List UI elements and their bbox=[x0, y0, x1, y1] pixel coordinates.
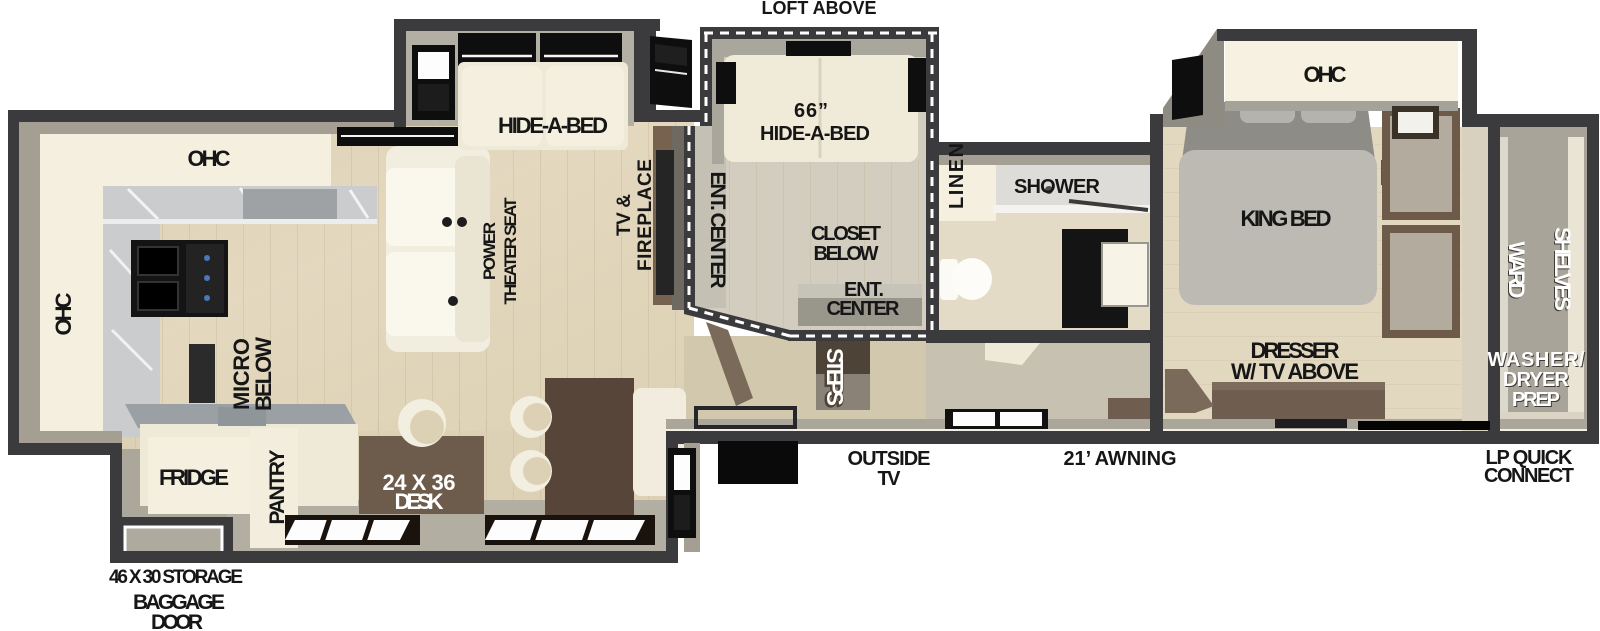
svg-text:KING BED: KING BED bbox=[1241, 206, 1332, 231]
svg-text:HIDE-A-BED: HIDE-A-BED bbox=[760, 123, 870, 145]
svg-text:STEPS: STEPS bbox=[822, 348, 848, 406]
svg-text:TV &: TV & bbox=[614, 194, 635, 236]
svg-text:OHC: OHC bbox=[1304, 62, 1347, 87]
svg-text:DESK: DESK bbox=[395, 489, 444, 514]
svg-text:OHC: OHC bbox=[188, 146, 231, 171]
svg-text:FRIDGE: FRIDGE bbox=[159, 465, 229, 490]
svg-text:46 X 30 STORAGE: 46 X 30 STORAGE bbox=[109, 567, 243, 588]
svg-text:HIDE-A-BED: HIDE-A-BED bbox=[498, 113, 608, 138]
svg-text:DOOR: DOOR bbox=[151, 611, 203, 631]
svg-text:POWER: POWER bbox=[480, 222, 499, 280]
svg-text:WARD: WARD bbox=[1504, 242, 1529, 299]
svg-text:ENT. CENTER: ENT. CENTER bbox=[706, 172, 729, 289]
svg-text:CLOSET: CLOSET bbox=[811, 223, 881, 245]
svg-text:LOFT ABOVE: LOFT ABOVE bbox=[762, 0, 877, 18]
svg-text:OUTSIDE: OUTSIDE bbox=[848, 448, 931, 470]
svg-text:WASHER/: WASHER/ bbox=[1488, 349, 1585, 371]
svg-text:PREP: PREP bbox=[1512, 389, 1560, 411]
svg-text:66”: 66” bbox=[794, 100, 828, 122]
svg-text:BELOW: BELOW bbox=[814, 243, 879, 265]
svg-text:CENTER: CENTER bbox=[827, 298, 901, 320]
svg-text:DRYER: DRYER bbox=[1503, 369, 1570, 391]
svg-text:OHC: OHC bbox=[51, 292, 76, 335]
svg-text:TV: TV bbox=[878, 468, 902, 490]
svg-text:CONNECT: CONNECT bbox=[1484, 465, 1574, 487]
svg-text:FIREPLACE: FIREPLACE bbox=[635, 159, 656, 271]
svg-text:21’ AWNING: 21’ AWNING bbox=[1064, 448, 1177, 470]
svg-text:W/ TV ABOVE: W/ TV ABOVE bbox=[1231, 359, 1359, 384]
svg-text:SHOWER: SHOWER bbox=[1014, 176, 1101, 198]
svg-text:SHELVES: SHELVES bbox=[1550, 227, 1575, 311]
svg-text:PANTRY: PANTRY bbox=[266, 450, 289, 525]
svg-text:BELOW: BELOW bbox=[251, 337, 276, 411]
svg-text:THEATER SEAT: THEATER SEAT bbox=[501, 197, 520, 305]
svg-text:LINEN: LINEN bbox=[946, 143, 968, 209]
